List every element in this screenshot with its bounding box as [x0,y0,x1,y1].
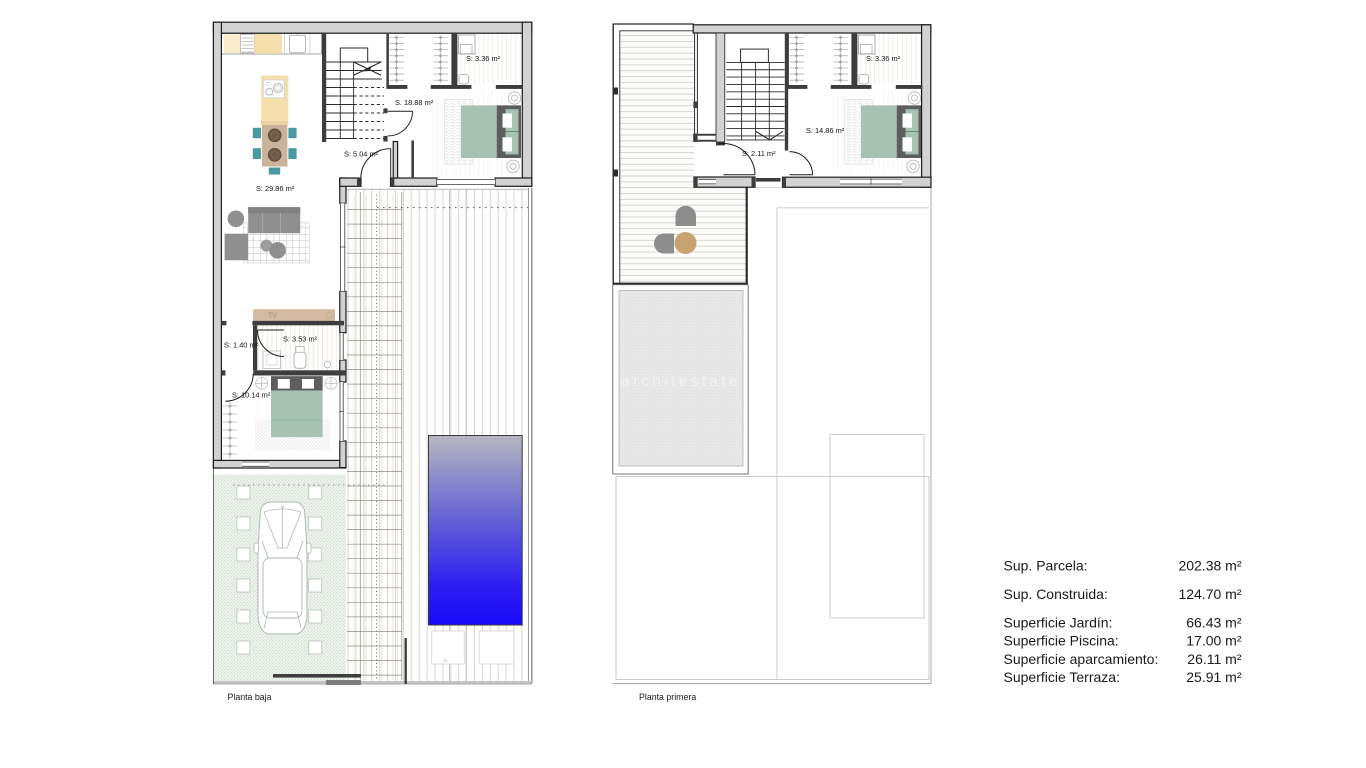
svg-text:Sup. Parcela:: Sup. Parcela: [1004,558,1088,574]
svg-text:architestate: architestate [621,373,741,390]
svg-text:17.00 m²: 17.00 m² [1186,633,1242,649]
svg-text:S: 3.36 m²: S: 3.36 m² [466,54,501,63]
svg-text:S: 5.04 m²: S: 5.04 m² [344,150,379,159]
svg-text:Superficie Jardín:: Superficie Jardín: [1004,615,1113,631]
svg-text:S: 2.11 m²: S: 2.11 m² [742,149,776,158]
svg-text:124.70 m²: 124.70 m² [1178,586,1241,602]
svg-text:Planta primera: Planta primera [639,692,696,702]
svg-text:202.38 m²: 202.38 m² [1178,558,1241,574]
svg-text:TV: TV [268,313,277,320]
svg-text:S: 3.53 m²: S: 3.53 m² [283,335,318,344]
svg-text:Superficie Piscina:: Superficie Piscina: [1004,633,1119,649]
svg-text:Sup. Construida:: Sup. Construida: [1004,586,1108,602]
svg-text:S: 1.40 m²: S: 1.40 m² [224,341,259,350]
svg-text:25.91 m²: 25.91 m² [1186,669,1242,685]
svg-text:S: 29.86 m²: S: 29.86 m² [256,184,295,193]
svg-text:66.43 m²: 66.43 m² [1186,615,1242,631]
svg-text:S: 10.14 m²: S: 10.14 m² [232,391,271,400]
svg-text:lu: lu [444,658,448,663]
svg-text:S: 14.86 m²: S: 14.86 m² [806,126,845,135]
svg-text:Superficie Terraza:: Superficie Terraza: [1004,669,1120,685]
svg-text:S. 18.88 m²: S. 18.88 m² [395,98,434,107]
svg-text:26.11 m²: 26.11 m² [1187,651,1242,667]
svg-text:S: 3.36 m²: S: 3.36 m² [866,54,901,63]
svg-text:Superficie aparcamiento:: Superficie aparcamiento: [1004,651,1159,667]
svg-text:Planta baja: Planta baja [228,692,272,702]
